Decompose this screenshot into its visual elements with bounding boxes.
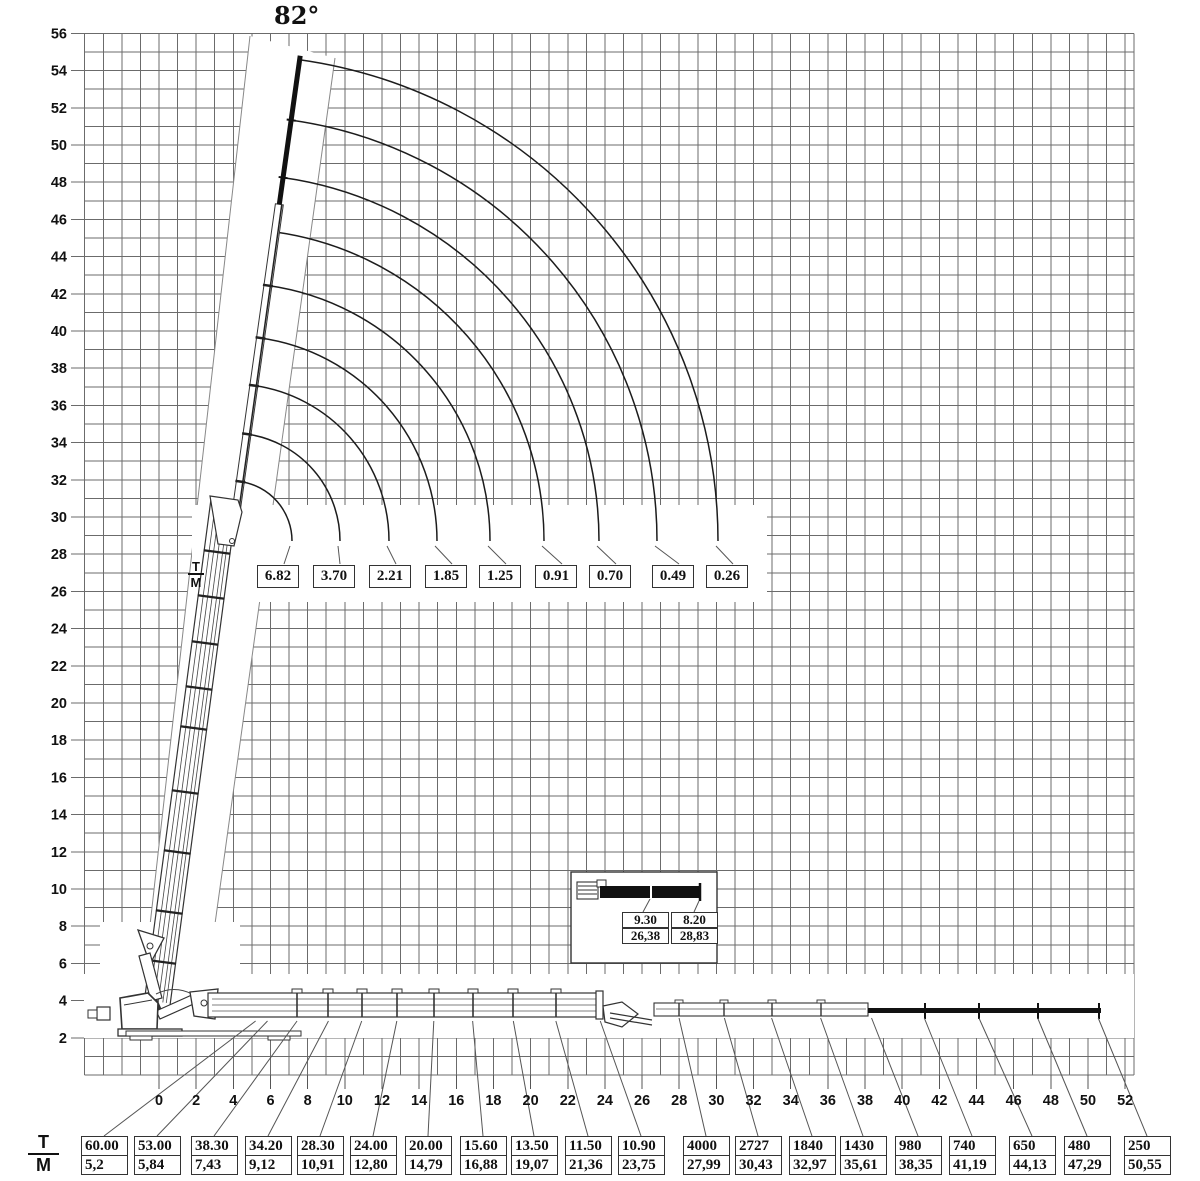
table-load-cell: 740 [949, 1136, 996, 1156]
y-tick-label: 2 [59, 1031, 67, 1047]
unit-tonnes-label: T [28, 1133, 59, 1155]
jib-load-box: 3.70 [313, 565, 355, 588]
x-tick-label: 6 [266, 1093, 274, 1109]
table-load-cell: 650 [1009, 1136, 1056, 1156]
table-reach-cell: 12,80 [350, 1155, 397, 1175]
y-tick-label: 44 [51, 250, 67, 266]
table-load-cell: 250 [1124, 1136, 1171, 1156]
table-load-cell: 4000 [683, 1136, 730, 1156]
y-tick-label: 32 [51, 473, 67, 489]
y-tick-label: 34 [51, 436, 67, 452]
table-load-cell: 13.50 [511, 1136, 558, 1156]
x-tick-label: 28 [671, 1093, 687, 1109]
table-load-cell: 60.00 [81, 1136, 128, 1156]
y-tick-label: 42 [51, 287, 67, 303]
y-tick-label: 50 [51, 138, 67, 154]
x-tick-label: 48 [1043, 1093, 1059, 1109]
y-tick-label: 30 [51, 510, 67, 526]
y-tick-label: 46 [51, 212, 67, 228]
x-tick-label: 0 [155, 1093, 163, 1109]
table-load-cell: 1840 [789, 1136, 836, 1156]
y-tick-label: 20 [51, 696, 67, 712]
y-tick-label: 54 [51, 64, 67, 80]
table-load-cell: 53.00 [134, 1136, 181, 1156]
table-reach-cell: 9,12 [245, 1155, 292, 1175]
table-reach-cell: 38,35 [895, 1155, 942, 1175]
table-reach-cell: 35,61 [840, 1155, 887, 1175]
table-load-cell: 15.60 [460, 1136, 507, 1156]
y-tick-label: 40 [51, 324, 67, 340]
x-tick-label: 26 [634, 1093, 650, 1109]
table-reach-cell: 21,36 [565, 1155, 612, 1175]
x-tick-label: 52 [1117, 1093, 1133, 1109]
x-tick-label: 32 [745, 1093, 761, 1109]
table-reach-cell: 16,88 [460, 1155, 507, 1175]
x-tick-label: 24 [597, 1093, 613, 1109]
unit-metres-label: M [28, 1155, 59, 1174]
y-tick-label: 38 [51, 361, 67, 377]
table-load-cell: 10.90 [618, 1136, 665, 1156]
y-tick-label: 24 [51, 622, 67, 638]
x-tick-label: 2 [192, 1093, 200, 1109]
y-tick-label: 8 [59, 919, 67, 935]
table-reach-cell: 44,13 [1009, 1155, 1056, 1175]
jib-load-box: 0.70 [589, 565, 631, 588]
y-tick-label: 16 [51, 770, 67, 786]
x-tick-label: 20 [523, 1093, 539, 1109]
crane-load-chart: 0246810121416182022242628303234363840424… [0, 0, 1200, 1181]
jib-unit-fraction: T M [188, 560, 204, 589]
x-tick-label: 36 [820, 1093, 836, 1109]
x-tick-label: 22 [560, 1093, 576, 1109]
table-reach-cell: 5,2 [81, 1155, 128, 1175]
table-reach-cell: 50,55 [1124, 1155, 1171, 1175]
table-load-cell: 34.20 [245, 1136, 292, 1156]
jib-load-box: 2.21 [369, 565, 411, 588]
x-tick-label: 42 [931, 1093, 947, 1109]
jib-load-box: 1.25 [479, 565, 521, 588]
table-reach-cell: 7,43 [191, 1155, 238, 1175]
x-tick-label: 34 [783, 1093, 799, 1109]
table-reach-cell: 32,97 [789, 1155, 836, 1175]
boom-angle-label: 82° [274, 1, 319, 30]
table-unit-fraction: T M [28, 1133, 59, 1174]
table-load-cell: 2727 [735, 1136, 782, 1156]
x-tick-label: 14 [411, 1093, 427, 1109]
leader-lines [104, 546, 1147, 1136]
table-reach-cell: 30,43 [735, 1155, 782, 1175]
table-reach-cell: 5,84 [134, 1155, 181, 1175]
y-tick-label: 48 [51, 175, 67, 191]
jib-load-box: 0.49 [652, 565, 694, 588]
x-tick-label: 16 [448, 1093, 464, 1109]
x-tick-label: 40 [894, 1093, 910, 1109]
x-tick-label: 12 [374, 1093, 390, 1109]
y-tick-label: 6 [59, 956, 67, 972]
table-reach-cell: 47,29 [1064, 1155, 1111, 1175]
y-tick-label: 12 [51, 845, 67, 861]
table-load-cell: 24.00 [350, 1136, 397, 1156]
diagram-canvas: 0246810121416182022242628303234363840424… [0, 0, 1200, 1181]
inset-load-cell: 9.30 [622, 912, 669, 928]
jib-load-box: 0.91 [535, 565, 577, 588]
x-tick-label: 50 [1080, 1093, 1096, 1109]
y-tick-label: 52 [51, 101, 67, 117]
table-load-cell: 20.00 [405, 1136, 452, 1156]
x-tick-label: 10 [337, 1093, 353, 1109]
table-load-cell: 480 [1064, 1136, 1111, 1156]
capacity-arc [283, 178, 599, 541]
table-reach-cell: 41,19 [949, 1155, 996, 1175]
x-tick-label: 4 [229, 1093, 237, 1109]
y-tick-label: 18 [51, 733, 67, 749]
x-tick-label: 8 [304, 1093, 312, 1109]
y-tick-label: 26 [51, 584, 67, 600]
jib-load-box: 0.26 [706, 565, 748, 588]
y-tick-label: 10 [51, 882, 67, 898]
y-tick-label: 56 [51, 26, 67, 42]
y-tick-label: 28 [51, 547, 67, 563]
unit-tonnes-label: T [188, 560, 204, 575]
table-load-cell: 28.30 [297, 1136, 344, 1156]
x-tick-label: 44 [968, 1093, 984, 1109]
inset-reach-cell: 26,38 [622, 928, 669, 944]
table-reach-cell: 14,79 [405, 1155, 452, 1175]
y-tick-label: 36 [51, 398, 67, 414]
y-tick-label: 22 [51, 659, 67, 675]
y-tick-label: 14 [51, 808, 67, 824]
table-load-cell: 38.30 [191, 1136, 238, 1156]
table-reach-cell: 27,99 [683, 1155, 730, 1175]
x-tick-label: 46 [1006, 1093, 1022, 1109]
table-reach-cell: 23,75 [618, 1155, 665, 1175]
unit-metres-label: M [188, 575, 204, 589]
x-tick-label: 18 [485, 1093, 501, 1109]
jib-load-box: 6.82 [257, 565, 299, 588]
table-load-cell: 1430 [840, 1136, 887, 1156]
inset-load-cell: 8.20 [671, 912, 718, 928]
table-load-cell: 11.50 [565, 1136, 612, 1156]
table-load-cell: 980 [895, 1136, 942, 1156]
inset-reach-cell: 28,83 [671, 928, 718, 944]
table-reach-cell: 19,07 [511, 1155, 558, 1175]
jib-load-box: 1.85 [425, 565, 467, 588]
y-tick-label: 4 [59, 994, 67, 1010]
table-reach-cell: 10,91 [297, 1155, 344, 1175]
x-tick-label: 30 [708, 1093, 724, 1109]
x-tick-label: 38 [857, 1093, 873, 1109]
